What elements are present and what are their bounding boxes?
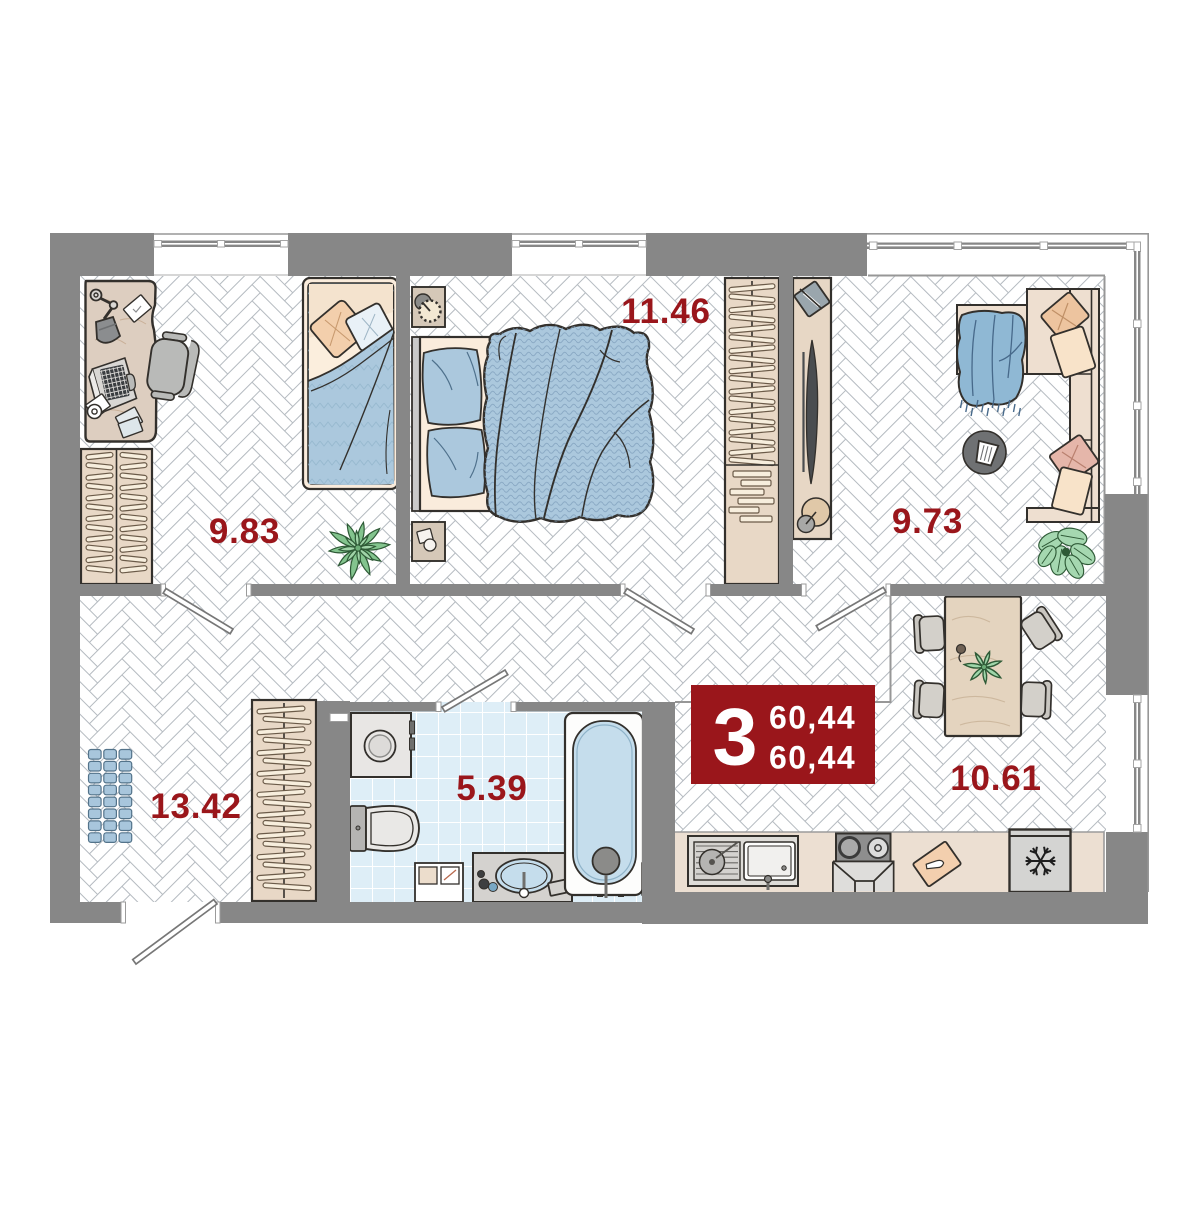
svg-text:60,44: 60,44 [769, 700, 856, 736]
svg-text:9.73: 9.73 [892, 502, 963, 541]
svg-text:11.46: 11.46 [621, 292, 711, 331]
svg-text:10.61: 10.61 [950, 759, 1042, 798]
svg-text:9.83: 9.83 [209, 512, 280, 551]
svg-text:3: 3 [712, 693, 757, 783]
svg-text:13.42: 13.42 [150, 787, 242, 826]
svg-text:5.39: 5.39 [456, 769, 527, 808]
svg-text:60,44: 60,44 [769, 740, 856, 776]
